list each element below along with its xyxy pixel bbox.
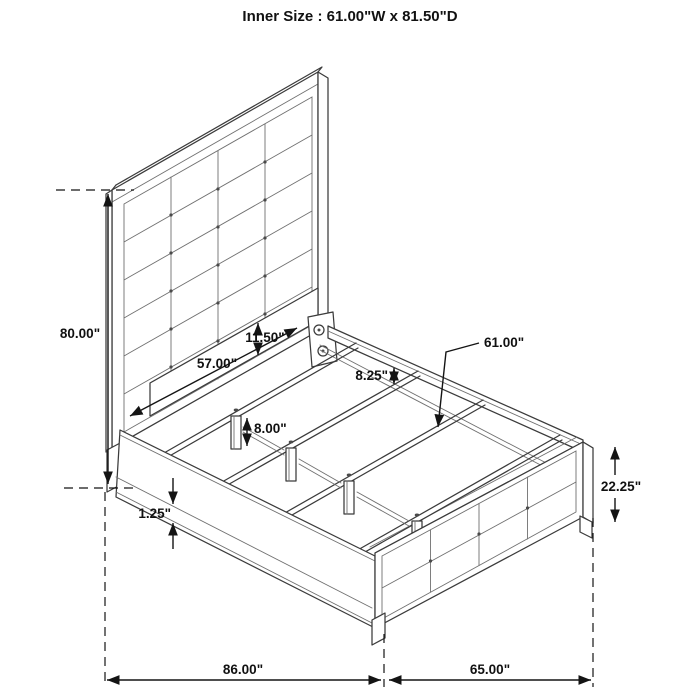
headboard bbox=[106, 67, 337, 492]
near-side-rail bbox=[116, 430, 375, 628]
bed-dimension-diagram-page: 80.00" 57.00" 11.50" 8.25" 61.00" 8.00" … bbox=[0, 0, 700, 700]
headboard-left-edge bbox=[106, 190, 112, 452]
near-side-rail-face bbox=[116, 430, 375, 628]
dimension-footboard-height: 22.25" bbox=[601, 447, 641, 522]
leg-screw-4 bbox=[415, 514, 420, 517]
footboard-right-edge bbox=[583, 442, 593, 523]
dim-label-footboard-width: 65.00" bbox=[470, 662, 510, 677]
dim-label-overall-length: 86.00" bbox=[223, 662, 263, 677]
dimension-rail-to-support-height: 8.25" bbox=[355, 368, 394, 384]
far-side-rail bbox=[328, 326, 583, 452]
center-leg-2 bbox=[286, 448, 296, 481]
far-side-rail-seam bbox=[328, 331, 583, 445]
center-leg-3 bbox=[344, 481, 354, 514]
dim-label-rail-to-support-height: 8.25" bbox=[355, 368, 388, 383]
dim-label-footboard-height: 22.25" bbox=[601, 479, 641, 494]
leg-screw-1 bbox=[234, 409, 239, 412]
slat-2 bbox=[222, 371, 420, 487]
dim-label-headboard-rail-height: 11.50" bbox=[245, 330, 284, 345]
dim-label-slat-length: 61.00" bbox=[484, 335, 524, 350]
headboard-right-post bbox=[318, 72, 328, 338]
page-title: Inner Size : 61.00"W x 81.50"D bbox=[242, 8, 457, 25]
center-leg-1 bbox=[231, 416, 241, 449]
bed-dimension-diagram: 80.00" 57.00" 11.50" 8.25" 61.00" 8.00" … bbox=[0, 0, 700, 700]
leg-screw-3 bbox=[347, 474, 352, 477]
footboard bbox=[372, 442, 593, 645]
leg-screw-2 bbox=[289, 441, 294, 444]
dimension-center-leg-height: 8.00" bbox=[247, 418, 287, 446]
dim-label-side-rail-trim: 1.25" bbox=[138, 506, 171, 521]
dim-label-headboard-height: 80.00" bbox=[60, 326, 100, 341]
dim-label-center-leg-height: 8.00" bbox=[254, 421, 287, 436]
far-metal-rail bbox=[320, 345, 575, 483]
dim-label-headboard-rail-length: 57.00" bbox=[197, 356, 237, 371]
